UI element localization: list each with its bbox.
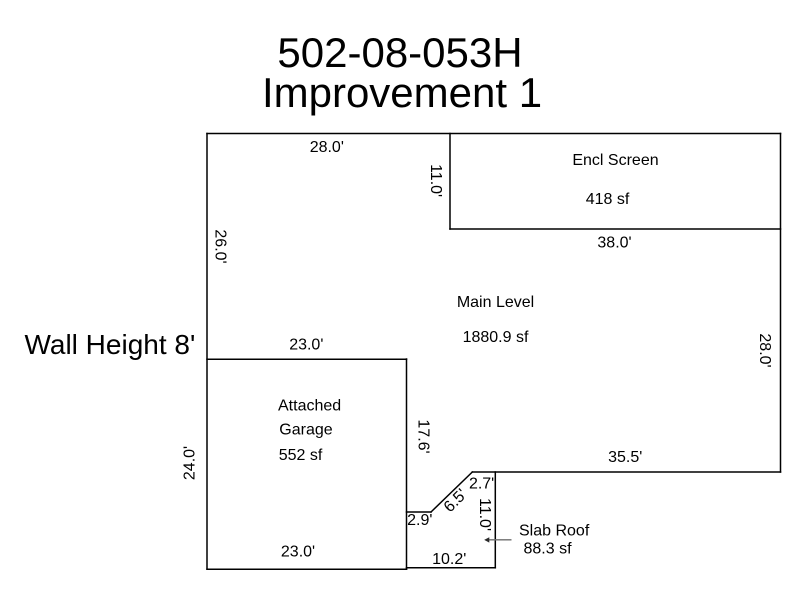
svg-text:17.6': 17.6' — [415, 419, 432, 453]
svg-text:28.0': 28.0' — [756, 333, 773, 367]
svg-text:23.0': 23.0' — [289, 337, 323, 354]
svg-text:Garage: Garage — [279, 422, 332, 439]
svg-text:2.9': 2.9' — [407, 512, 432, 529]
svg-text:10.2': 10.2' — [432, 551, 466, 568]
svg-text:Encl Screen: Encl Screen — [572, 152, 658, 169]
svg-text:28.0': 28.0' — [310, 139, 344, 156]
svg-text:Main Level: Main Level — [457, 294, 534, 311]
svg-text:Attached: Attached — [278, 398, 341, 415]
svg-text:Improvement 1: Improvement 1 — [262, 69, 542, 116]
svg-text:11.0': 11.0' — [476, 498, 493, 531]
svg-text:552 sf: 552 sf — [279, 447, 323, 464]
svg-text:38.0': 38.0' — [597, 235, 631, 252]
svg-text:418 sf: 418 sf — [586, 191, 630, 208]
svg-text:Wall Height 8': Wall Height 8' — [25, 329, 196, 360]
svg-text:1880.9 sf: 1880.9 sf — [463, 329, 529, 346]
svg-text:23.0': 23.0' — [281, 544, 315, 561]
svg-text:26.0': 26.0' — [211, 229, 228, 263]
svg-text:2.7': 2.7' — [469, 476, 494, 493]
svg-text:Slab Roof: Slab Roof — [519, 523, 590, 540]
svg-text:88.3 sf: 88.3 sf — [524, 541, 573, 558]
svg-text:11.0': 11.0' — [427, 164, 444, 197]
svg-text:35.5': 35.5' — [608, 449, 642, 466]
svg-text:24.0': 24.0' — [182, 446, 199, 480]
